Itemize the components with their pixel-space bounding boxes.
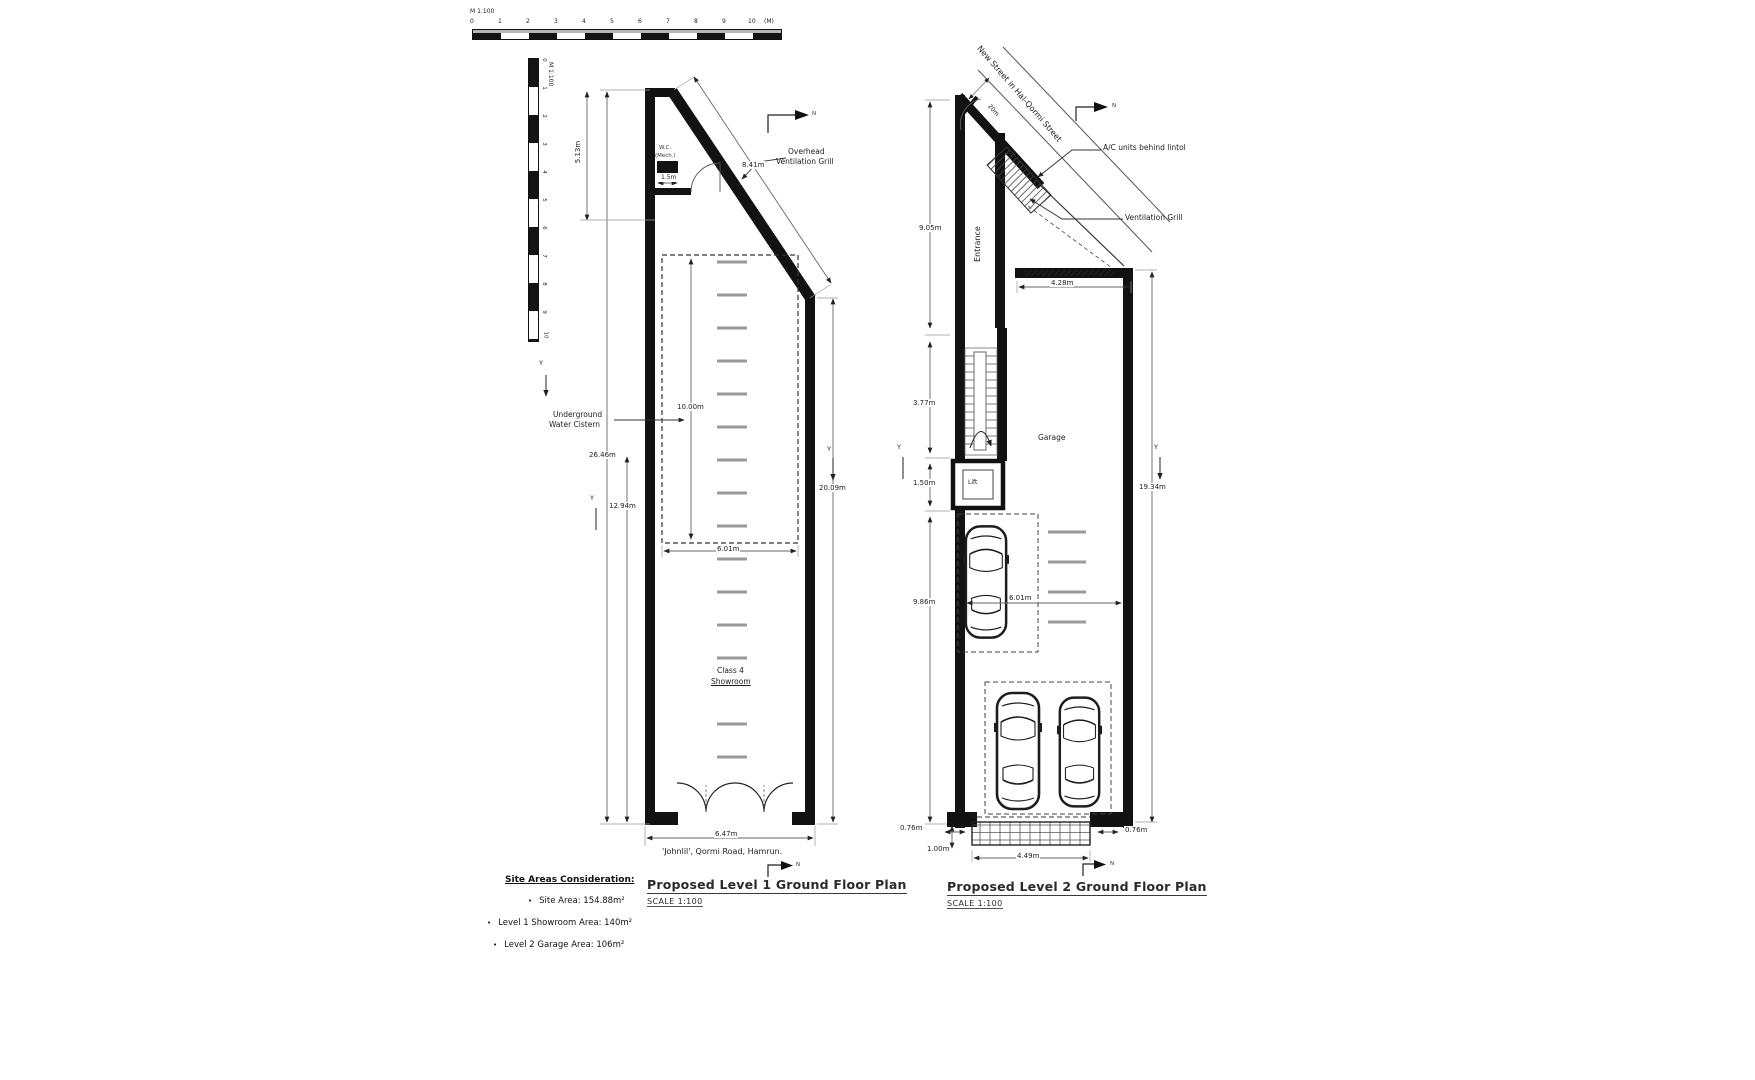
section-marker-y: Y bbox=[1154, 444, 1158, 451]
plan1-drawing bbox=[546, 77, 838, 877]
overhead-grill-label-1: Overhead bbox=[788, 148, 825, 157]
wc-door-arc bbox=[691, 163, 720, 192]
dim-8-41: 8.41m bbox=[741, 161, 765, 169]
scale-tick: 7 bbox=[666, 18, 670, 25]
scale-tick: 9 bbox=[541, 310, 547, 314]
scale-tick: 2 bbox=[526, 18, 530, 25]
dim-6-01-cistern: 6.01m bbox=[716, 545, 740, 553]
cistern-label-1: Underground bbox=[553, 411, 602, 420]
north-letter: N bbox=[1112, 103, 1116, 109]
ventilation-grill-label: Ventilation Grill bbox=[1125, 214, 1183, 223]
site-area-item: •Level 2 Garage Area: 106m² bbox=[493, 941, 624, 951]
lintol-edge-dashed bbox=[1028, 206, 1112, 268]
ac-units-label: A/C units behind lintol bbox=[1103, 144, 1186, 153]
dim-3-77: 3.77m bbox=[912, 399, 936, 407]
dim-20-09: 20.09m bbox=[818, 484, 847, 492]
lift-shaft bbox=[953, 461, 1003, 508]
plan2-title: Proposed Level 2 Ground Floor Plan bbox=[947, 880, 1207, 896]
blueprint-page: M 1:100 0 1 2 3 4 5 6 7 8 9 10 (M) M 1:1… bbox=[0, 0, 1755, 1080]
scale-tick: 4 bbox=[541, 170, 547, 174]
dim-6-01-garage: 6.01m bbox=[1008, 594, 1032, 602]
dim-9-86: 9.86m bbox=[912, 598, 936, 606]
section-marker-y: Y bbox=[539, 360, 543, 367]
bullet-icon: • bbox=[493, 941, 497, 949]
north-letter: N bbox=[796, 862, 800, 868]
scale-tick: 1 bbox=[498, 18, 502, 25]
bullet-icon: • bbox=[487, 919, 491, 927]
dim-0-76-left: 0.76m bbox=[899, 824, 923, 832]
dim-1-00: 1.00m bbox=[926, 845, 950, 853]
staircase bbox=[965, 348, 997, 455]
cistern-outline bbox=[662, 255, 798, 543]
scale-tick: 0 bbox=[541, 58, 547, 62]
scale-tick: 5 bbox=[610, 18, 614, 25]
vertical-scale-bar bbox=[528, 58, 539, 342]
car-top-view bbox=[963, 526, 1009, 637]
scale-tick: 5 bbox=[541, 198, 547, 202]
garage-label: Garage bbox=[1038, 434, 1065, 443]
site-area-item-text: Site Area: 154.88m² bbox=[539, 896, 625, 906]
address: 'Johnlil', Qormi Road, Hamrun. bbox=[662, 847, 782, 856]
scale-tick: 1 bbox=[541, 86, 547, 90]
north-letter: N bbox=[812, 111, 816, 117]
scale-tick: 2 bbox=[541, 114, 547, 118]
lintol-edge bbox=[1041, 186, 1124, 266]
dim-0-76-right: 0.76m bbox=[1124, 826, 1148, 834]
horizontal-scale-bar bbox=[472, 29, 782, 40]
dim-6-47: 6.47m bbox=[714, 830, 738, 838]
plan1-dimension-lines bbox=[587, 77, 833, 838]
dim-19-34: 19.34m bbox=[1138, 483, 1167, 491]
north-arrow-plan1-top bbox=[768, 110, 809, 133]
entrance-label: Entrance bbox=[973, 226, 982, 262]
ventilation-grill-strip bbox=[1024, 270, 1116, 277]
bullet-icon: • bbox=[528, 897, 532, 905]
scale-tick: 8 bbox=[694, 18, 698, 25]
north-arrow-plan1-bottom bbox=[768, 861, 793, 877]
plan1-diagonal-wall bbox=[672, 91, 811, 299]
dim-12-94: 12.94m bbox=[608, 502, 637, 510]
ac-leader bbox=[1038, 150, 1101, 177]
vscalebar-title: M 1:100 bbox=[546, 62, 553, 86]
section-marker-y: Y bbox=[590, 495, 594, 502]
scale-tick: 0 bbox=[470, 18, 474, 25]
scale-unit: (M) bbox=[764, 18, 774, 25]
plan1-extension-lines bbox=[580, 77, 838, 846]
plan1-walls bbox=[645, 88, 815, 825]
wc-sublabel: (Mech.) bbox=[655, 153, 676, 159]
overhead-grill-label-2: Ventilation Grill bbox=[776, 158, 834, 167]
showroom-label-1: Class 4 bbox=[717, 667, 744, 676]
garage-dash-marks bbox=[1048, 532, 1086, 622]
plan1-title: Proposed Level 1 Ground Floor Plan bbox=[647, 878, 907, 894]
scale-tick: 7 bbox=[541, 254, 547, 258]
section-marker-y: Y bbox=[827, 446, 831, 453]
scale-tick: 6 bbox=[638, 18, 642, 25]
north-arrow-plan2-top bbox=[1076, 102, 1108, 121]
scale-tick: 10 bbox=[543, 332, 549, 339]
door-fold-lines bbox=[706, 785, 764, 812]
site-area-item-text: Level 1 Showroom Area: 140m² bbox=[498, 918, 632, 928]
car-top-view bbox=[1057, 698, 1102, 807]
dim-1-50: 1.50m bbox=[912, 479, 936, 487]
showroom-label-2: Showroom bbox=[711, 678, 751, 687]
scale-tick: 10 bbox=[748, 18, 756, 25]
scale-tick: 9 bbox=[722, 18, 726, 25]
floor-plans-drawing bbox=[0, 0, 1755, 1080]
hscalebar-title: M 1:100 bbox=[470, 9, 494, 16]
scale-tick: 3 bbox=[541, 142, 547, 146]
dim-5-13: 5.13m bbox=[574, 140, 582, 164]
plan2-drawing bbox=[903, 47, 1170, 876]
dim-4-49: 4.49m bbox=[1016, 852, 1040, 860]
north-arrow-plan2-bottom bbox=[1083, 860, 1106, 876]
site-area-item-text: Level 2 Garage Area: 106m² bbox=[504, 940, 624, 950]
section-arrows-plan2 bbox=[903, 457, 1160, 479]
north-letter: N bbox=[1110, 861, 1114, 867]
cistern-label-2: Water Cistern bbox=[549, 421, 600, 430]
scale-tick: 6 bbox=[541, 226, 547, 230]
dim-10-00: 10.00m bbox=[676, 403, 705, 411]
site-area-item: •Level 1 Showroom Area: 140m² bbox=[487, 919, 632, 929]
car-top-view bbox=[994, 693, 1042, 809]
entrance-door-arcs bbox=[677, 783, 793, 812]
site-area-item: •Site Area: 154.88m² bbox=[528, 897, 625, 907]
scale-tick: 3 bbox=[554, 18, 558, 25]
wc-label: W.C. bbox=[659, 145, 671, 151]
scale-tick: 4 bbox=[582, 18, 586, 25]
section-marker-y: Y bbox=[897, 444, 901, 451]
scale-tick: 8 bbox=[541, 282, 547, 286]
plan2-scale-note: SCALE 1:100 bbox=[947, 899, 1003, 909]
ramp-grill bbox=[972, 822, 1090, 845]
dim-wc-width: 1.5m bbox=[660, 175, 677, 182]
plan1-scale-note: SCALE 1:100 bbox=[647, 897, 703, 907]
lift-label: Lift bbox=[968, 480, 977, 487]
dim-9-05: 9.05m bbox=[918, 224, 942, 232]
dim-26-46: 26.46m bbox=[588, 451, 617, 459]
dim-4-28: 4.28m bbox=[1050, 279, 1074, 287]
street-width-dim bbox=[969, 78, 989, 99]
site-areas-heading: Site Areas Consideration: bbox=[505, 875, 634, 885]
